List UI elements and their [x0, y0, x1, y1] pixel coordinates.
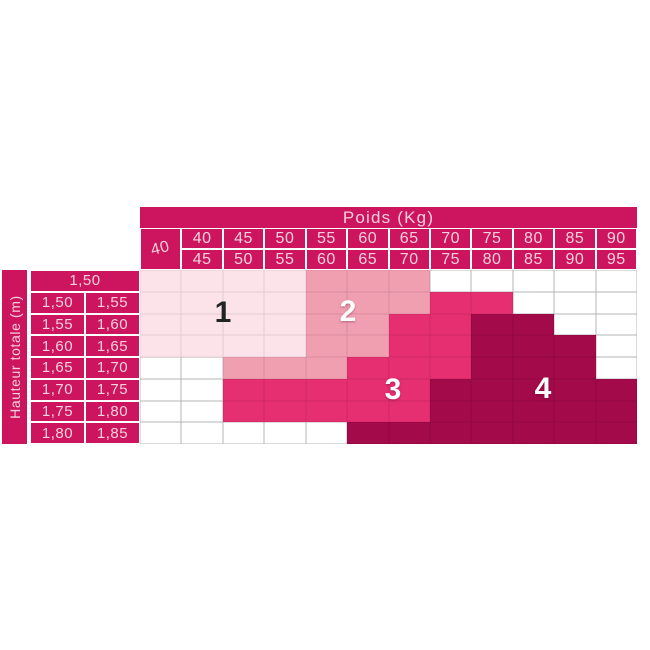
zone-cell — [264, 422, 305, 444]
zone-cell — [181, 335, 222, 357]
zone-cell — [223, 422, 264, 444]
height-upper-cell: 1,70 — [85, 357, 140, 379]
zone-cell — [554, 357, 595, 379]
weight-lower-cell: 55 — [264, 249, 305, 270]
weight-upper-cell: 70 — [430, 228, 471, 249]
zone-cell — [181, 357, 222, 379]
weight-upper-cell: 85 — [554, 228, 595, 249]
height-lower-cell: 1,60 — [30, 335, 85, 357]
zone-cell — [140, 357, 181, 379]
zone-cell — [430, 422, 471, 444]
zone-cell — [430, 292, 471, 314]
height-upper-cell: 1,85 — [85, 422, 140, 444]
zone-cell — [471, 314, 512, 336]
zone-cell — [306, 357, 347, 379]
zone-cell — [181, 379, 222, 401]
height-lower-cell: 1,80 — [30, 422, 85, 444]
weight-lower-cell: 65 — [347, 249, 388, 270]
zone-cell — [596, 357, 637, 379]
zone-cell — [223, 270, 264, 292]
zone-cell — [306, 422, 347, 444]
height-rows-header: 1,501,501,551,551,601,601,651,651,701,70… — [30, 270, 140, 444]
zone-cell — [306, 379, 347, 401]
zone-cell — [430, 314, 471, 336]
zone-cell — [140, 379, 181, 401]
zone-cell — [223, 379, 264, 401]
zone-cell — [471, 335, 512, 357]
zone-cell — [430, 335, 471, 357]
weight-upper-cell: 60 — [347, 228, 388, 249]
height-lower-cell: 1,70 — [30, 379, 85, 401]
zone-cell — [181, 401, 222, 423]
zone-cell — [347, 270, 388, 292]
zone-cell — [554, 292, 595, 314]
zone-cell — [471, 292, 512, 314]
zone-cell — [554, 379, 595, 401]
zone-label-3: 3 — [385, 375, 402, 405]
height-lower-cell: 1,65 — [30, 357, 85, 379]
zone-cell — [140, 292, 181, 314]
height-upper-cell: 1,60 — [85, 314, 140, 336]
zone-cell — [554, 401, 595, 423]
zone-cell — [513, 270, 554, 292]
zone-cell — [596, 292, 637, 314]
zone-cell — [596, 335, 637, 357]
zone-cell — [554, 314, 595, 336]
zone-cell — [264, 292, 305, 314]
zone-cell — [389, 335, 430, 357]
weight-upper-cell: 90 — [596, 228, 637, 249]
zone-cell — [347, 335, 388, 357]
zone-cell — [347, 422, 388, 444]
zone-cell — [471, 401, 512, 423]
height-axis-title: Hauteur totale (m) — [2, 270, 27, 444]
zone-cell — [223, 357, 264, 379]
zone-cell — [306, 335, 347, 357]
height-lower-cell: 1,75 — [30, 401, 85, 423]
weight-upper-cell: 75 — [471, 228, 512, 249]
zone-cell — [513, 335, 554, 357]
height-upper-cell: 1,65 — [85, 335, 140, 357]
zone-cell — [513, 422, 554, 444]
zone-cell — [596, 401, 637, 423]
weight-upper-cell: 45 — [223, 228, 264, 249]
weight-lower-cell: 50 — [223, 249, 264, 270]
zone-cell — [181, 270, 222, 292]
zone-cell — [306, 401, 347, 423]
zone-cell — [554, 335, 595, 357]
zone-cell — [389, 422, 430, 444]
zone-cell — [430, 357, 471, 379]
zone-cell — [554, 270, 595, 292]
zone-cell — [347, 357, 388, 379]
weight-upper-cell: 50 — [264, 228, 305, 249]
zone-cell — [347, 401, 388, 423]
weight-lower-cell: 75 — [430, 249, 471, 270]
height-upper-cell: 1,75 — [85, 379, 140, 401]
zone-cell — [471, 422, 512, 444]
zone-cell — [264, 335, 305, 357]
zone-label-2: 2 — [340, 297, 357, 327]
zone-cell — [264, 379, 305, 401]
zone-cell — [471, 270, 512, 292]
zone-cell — [347, 379, 388, 401]
weight-lower-cell: 90 — [554, 249, 595, 270]
zone-cell — [140, 422, 181, 444]
size-chart: Poids (Kg) 40404545505055556060656570707… — [0, 0, 650, 650]
zone-cell — [140, 401, 181, 423]
weight-lower-cell: 45 — [181, 249, 222, 270]
weight-upper-cell: 65 — [389, 228, 430, 249]
zone-cell — [554, 422, 595, 444]
zone-cell — [430, 379, 471, 401]
zone-cell — [223, 401, 264, 423]
zone-cell — [596, 270, 637, 292]
height-upper-cell: 1,80 — [85, 401, 140, 423]
weight-lower-cell: 80 — [471, 249, 512, 270]
weight-columns-header: 4040454550505555606065657070757580808585… — [140, 228, 637, 270]
zone-cell — [471, 379, 512, 401]
zone-label-1: 1 — [215, 298, 232, 328]
zone-cell — [264, 401, 305, 423]
zone-cell — [140, 335, 181, 357]
height-lower-cell: 1,55 — [30, 314, 85, 336]
zone-cell — [513, 292, 554, 314]
weight-lower-cell: 60 — [306, 249, 347, 270]
height-lower-cell: 1,50 — [30, 292, 85, 314]
zone-cell — [181, 422, 222, 444]
zone-cell — [223, 335, 264, 357]
zone-cell — [513, 314, 554, 336]
zone-cell — [430, 270, 471, 292]
weight-lower-cell: 95 — [596, 249, 637, 270]
weight-upper-cell: 40 — [181, 228, 222, 249]
zone-label-4: 4 — [535, 374, 552, 404]
zone-cell — [596, 314, 637, 336]
zone-cell — [596, 379, 637, 401]
zone-cell — [471, 357, 512, 379]
weight-corner-value: 40 — [150, 239, 172, 259]
weight-axis-title: Poids (Kg) — [140, 207, 637, 228]
weight-lower-cell: 70 — [389, 249, 430, 270]
height-merged-cell: 1,50 — [30, 270, 140, 292]
zone-cell — [140, 270, 181, 292]
weight-upper-cell: 80 — [513, 228, 554, 249]
height-axis-title-text: Hauteur totale (m) — [8, 295, 22, 419]
weight-upper-cell: 55 — [306, 228, 347, 249]
zone-cell — [140, 314, 181, 336]
weight-corner-cell: 40 — [140, 228, 181, 270]
weight-lower-cell: 85 — [513, 249, 554, 270]
zone-cell — [264, 314, 305, 336]
zone-cell — [430, 401, 471, 423]
zone-cell — [264, 270, 305, 292]
zone-cell — [306, 270, 347, 292]
height-upper-cell: 1,55 — [85, 292, 140, 314]
zone-cell — [596, 422, 637, 444]
zone-cell — [389, 270, 430, 292]
zone-cell — [389, 292, 430, 314]
zone-cell — [389, 314, 430, 336]
zone-cell — [264, 357, 305, 379]
